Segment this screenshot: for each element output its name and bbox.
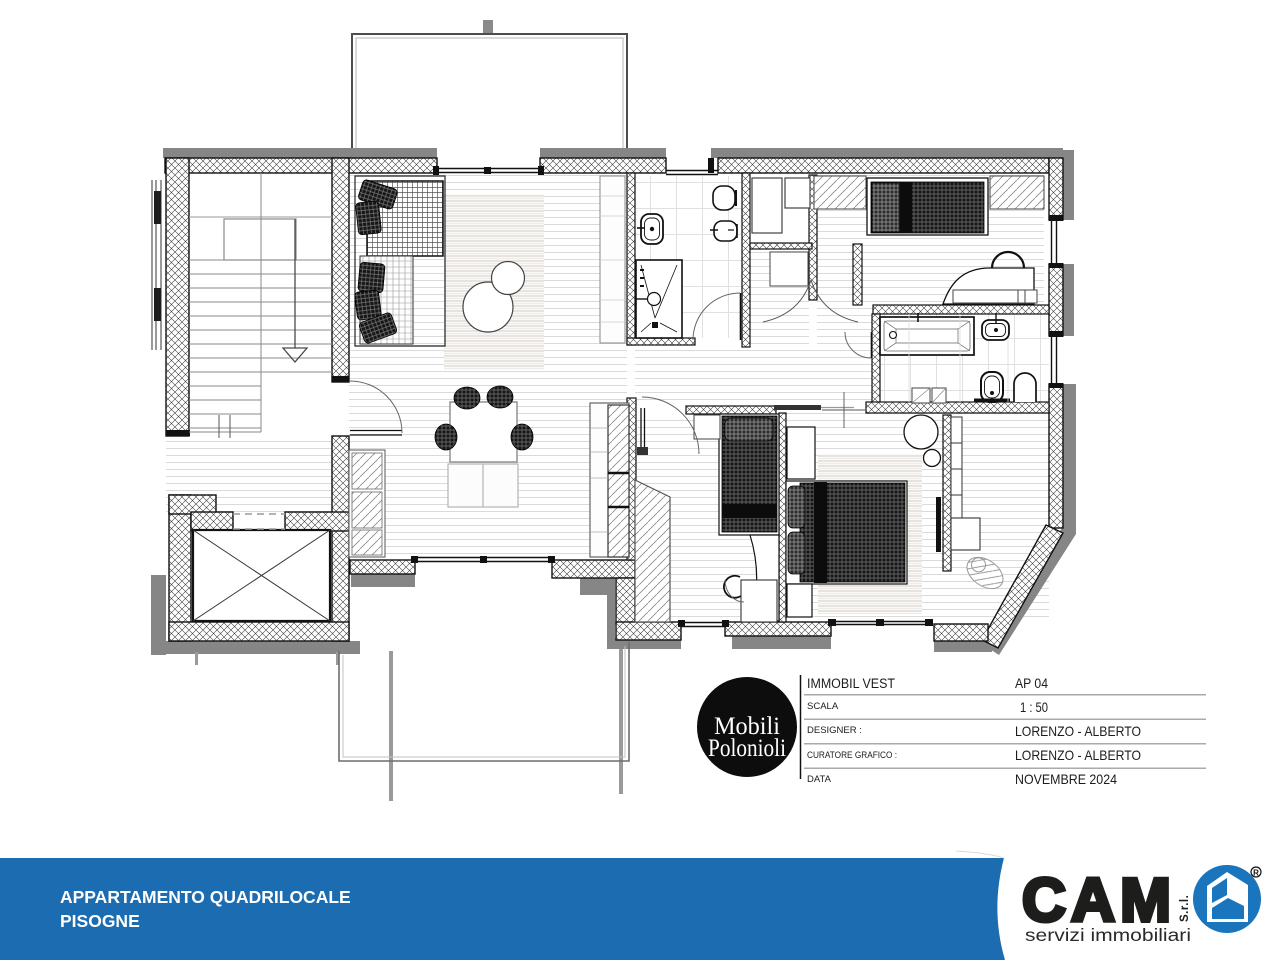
svg-text:NOVEMBRE 2024: NOVEMBRE 2024 xyxy=(1015,771,1117,787)
svg-text:DESIGNER :: DESIGNER : xyxy=(807,725,862,736)
svg-text:APPARTAMENTO QUADRILOCALE: APPARTAMENTO QUADRILOCALE xyxy=(60,887,351,907)
svg-text:LORENZO - ALBERTO: LORENZO - ALBERTO xyxy=(1015,747,1141,763)
svg-text:Polonioli: Polonioli xyxy=(708,735,786,762)
svg-text:DATA: DATA xyxy=(807,774,832,785)
svg-text:CURATORE GRAFICO :: CURATORE GRAFICO : xyxy=(807,750,897,761)
svg-text:AP 04: AP 04 xyxy=(1015,676,1048,691)
svg-text:CAM: CAM xyxy=(1022,866,1176,934)
svg-text:IMMOBIL VEST: IMMOBIL VEST xyxy=(807,676,895,691)
svg-text:R: R xyxy=(1253,868,1259,877)
svg-text:1 : 50: 1 : 50 xyxy=(1020,700,1048,715)
svg-text:LORENZO - ALBERTO: LORENZO - ALBERTO xyxy=(1015,723,1141,739)
svg-text:PISOGNE: PISOGNE xyxy=(60,911,140,931)
svg-text:S.r.l.: S.r.l. xyxy=(1179,895,1191,922)
svg-text:servizi immobiliari: servizi immobiliari xyxy=(1025,925,1191,945)
svg-text:SCALA: SCALA xyxy=(807,701,839,712)
